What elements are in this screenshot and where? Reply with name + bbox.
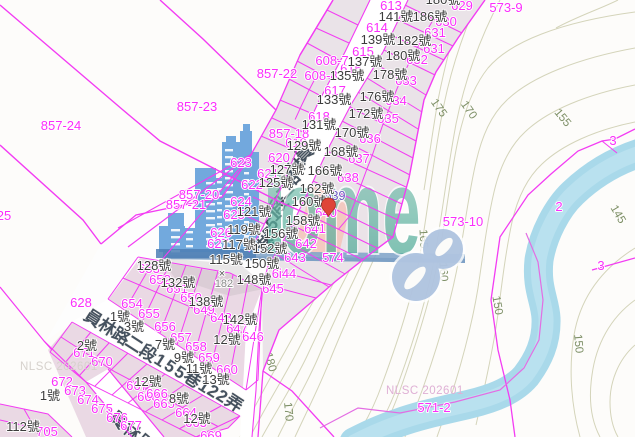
svg-text:180號: 180號: [386, 48, 421, 63]
svg-text:168號: 168號: [324, 144, 359, 159]
svg-text:12號: 12號: [134, 374, 161, 389]
svg-text:573-10: 573-10: [443, 214, 483, 229]
svg-text:182號: 182號: [397, 33, 432, 48]
svg-text:857-21: 857-21: [166, 197, 206, 212]
svg-text:138號: 138號: [189, 294, 224, 309]
svg-text:3: 3: [597, 258, 604, 273]
svg-text:160號: 160號: [292, 194, 327, 209]
svg-text:2號: 2號: [77, 338, 97, 353]
svg-text:139號: 139號: [361, 32, 396, 47]
svg-text:642: 642: [295, 236, 317, 251]
svg-text:135號: 135號: [330, 68, 365, 83]
svg-text:178號: 178號: [373, 67, 408, 82]
svg-text:857-22: 857-22: [257, 66, 297, 81]
svg-text:128號: 128號: [137, 258, 172, 273]
svg-text:131號: 131號: [302, 117, 337, 132]
svg-text:677: 677: [120, 418, 142, 433]
svg-text:571-2: 571-2: [417, 400, 450, 415]
svg-text:8號: 8號: [169, 391, 189, 406]
svg-text:12號: 12號: [213, 332, 240, 347]
svg-text:180號: 180號: [426, 0, 461, 7]
svg-text:142號: 142號: [223, 312, 258, 327]
svg-text:115號: 115號: [209, 252, 243, 267]
svg-text:7號: 7號: [155, 337, 175, 352]
svg-text:112號: 112號: [6, 419, 40, 434]
svg-text:25: 25: [0, 208, 11, 223]
svg-text:125號: 125號: [259, 175, 294, 190]
svg-text:857-23: 857-23: [177, 99, 217, 114]
svg-text:176號: 176號: [360, 89, 395, 104]
svg-text:608-7: 608-7: [315, 53, 348, 68]
svg-text:573-9: 573-9: [489, 0, 522, 15]
svg-text:1號: 1號: [40, 388, 60, 403]
svg-text:129號: 129號: [287, 138, 322, 153]
svg-text:156號: 156號: [264, 226, 299, 241]
svg-text:NLSC 202601: NLSC 202601: [20, 361, 98, 373]
svg-text:643: 643: [284, 250, 306, 265]
svg-text:152號: 152號: [253, 241, 288, 256]
svg-text:12號: 12號: [183, 411, 210, 426]
svg-text:186號: 186號: [413, 9, 448, 24]
svg-text:857-24: 857-24: [41, 118, 81, 133]
svg-text:2: 2: [555, 199, 562, 214]
svg-text:13號: 13號: [202, 372, 229, 387]
svg-text:3: 3: [609, 133, 616, 148]
svg-text:148號: 148號: [237, 272, 272, 287]
svg-text:172號: 172號: [349, 106, 384, 121]
svg-text:NLSC 202601: NLSC 202601: [386, 385, 464, 397]
svg-text:150: 150: [571, 334, 585, 354]
svg-text:117號: 117號: [222, 237, 256, 252]
svg-text:182: 182: [215, 278, 233, 290]
svg-text:133號: 133號: [317, 92, 352, 107]
svg-text:121號: 121號: [237, 204, 272, 219]
svg-text:141號: 141號: [379, 9, 414, 24]
svg-text:132號: 132號: [161, 275, 196, 290]
svg-text:628: 628: [70, 295, 92, 310]
svg-text:170號: 170號: [335, 125, 370, 140]
svg-text:170: 170: [281, 402, 295, 422]
svg-text:623: 623: [230, 155, 252, 170]
svg-text:166號: 166號: [308, 163, 343, 178]
svg-text:574: 574: [322, 250, 344, 265]
svg-text:3號: 3號: [124, 319, 144, 334]
svg-text:119號: 119號: [227, 222, 261, 237]
svg-text:150號: 150號: [245, 256, 280, 271]
